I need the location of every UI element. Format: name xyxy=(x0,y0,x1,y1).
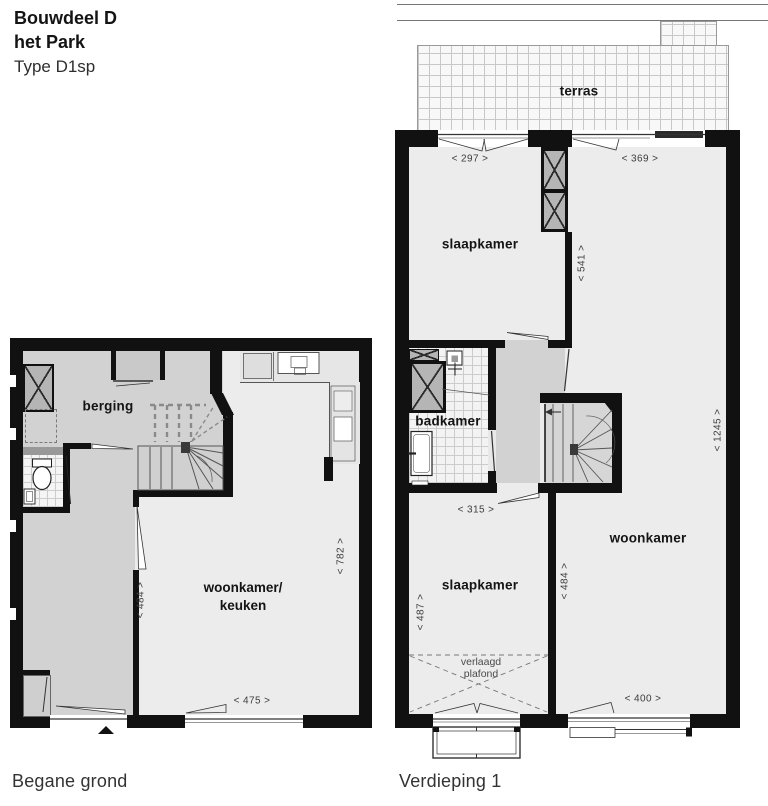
gf-wall-right xyxy=(359,338,372,728)
gf-label-woonkamer-keuken: woonkamer/ keuken xyxy=(204,579,283,615)
ff-hall-door-top xyxy=(505,340,548,348)
gf-hall-divider-upper xyxy=(133,490,139,507)
ff-terras-notch xyxy=(660,21,717,47)
ff-french-balcony-icon xyxy=(433,727,520,758)
gf-toilet-wall-bottom xyxy=(23,507,70,513)
ff-dim-315: < 315 > xyxy=(458,505,495,516)
gf-toilet-floor xyxy=(23,455,63,507)
gf-berging-door-wall xyxy=(63,443,91,449)
ff-window-back-2 xyxy=(568,714,690,728)
gf-washer-position xyxy=(25,409,57,443)
ff-dim-484: < 484 > xyxy=(560,563,571,600)
plan-title-line1: Bouwdeel D xyxy=(14,8,117,29)
ff-hall-upper xyxy=(496,348,565,395)
ff-divider-upper xyxy=(565,232,572,344)
gf-dim-484: < 484 > xyxy=(136,582,147,619)
ff-wall-right xyxy=(726,130,740,728)
ff-bath-shaft-small-icon xyxy=(409,349,439,361)
gf-caption: Begane grond xyxy=(12,771,128,792)
gf-kitchen-counter-right xyxy=(329,382,360,464)
gf-label-keuken-line2: keuken xyxy=(204,597,283,615)
ff-bath-shaft-icon xyxy=(409,361,446,413)
gf-kitchen-counter-top xyxy=(240,351,359,383)
gf-label-woonkamer-line1: woonkamer/ xyxy=(204,579,283,597)
gf-entrance-opening xyxy=(50,715,127,728)
ff-label-slaapkamer-front: slaapkamer xyxy=(442,237,518,252)
ff-divider-lower xyxy=(548,493,556,714)
gf-stair-treads-fill xyxy=(138,446,223,490)
ff-balcony-rail-icon xyxy=(570,728,692,738)
ff-wall-left xyxy=(395,130,409,728)
gf-wall-top xyxy=(10,338,372,351)
ff-woonkamer-door-stub xyxy=(552,340,572,348)
gf-toilet-wall-right xyxy=(63,449,70,511)
ff-label-woonkamer: woonkamer xyxy=(610,531,687,546)
ff-shaft-icon xyxy=(544,193,565,229)
gf-wall-notch xyxy=(10,608,16,620)
gf-label-berging: berging xyxy=(83,399,134,414)
ff-boundary-line-1 xyxy=(397,4,768,5)
plan-subtitle: Type D1sp xyxy=(14,57,95,77)
gf-wall-notch xyxy=(10,520,16,532)
ff-hall-lower xyxy=(496,395,540,483)
gf-kitchen-wall xyxy=(210,351,222,394)
ff-window-back-1 xyxy=(433,714,520,728)
gf-dim-782: < 782 > xyxy=(336,538,347,575)
gf-wall-notch xyxy=(10,375,16,387)
ff-window-front-1 xyxy=(438,130,528,147)
ff-hall-door-bottom xyxy=(497,483,538,493)
gf-shaft-icon xyxy=(23,364,54,412)
gf-meterbox xyxy=(23,675,51,717)
gf-stair-wall-right xyxy=(223,412,233,496)
gf-window-opening xyxy=(185,715,303,728)
ff-shaft-icon xyxy=(544,151,565,189)
ff-dim-297: < 297 > xyxy=(452,154,489,165)
ff-label-slaapkamer-back: slaapkamer xyxy=(442,578,518,593)
plan-title-line2: het Park xyxy=(14,32,85,53)
ff-dim-487: < 487 > xyxy=(416,594,427,631)
ff-label-verlaagd-plafond: verlaagd plafond xyxy=(461,656,501,680)
ff-stair-wall-right xyxy=(612,403,622,493)
floorplan-sheet: Bouwdeel D het Park Type D1sp berging wo… xyxy=(0,0,768,806)
gf-berging-entry-niche xyxy=(111,351,165,380)
ff-dim-400: < 400 > xyxy=(625,694,662,705)
ff-caption: Verdieping 1 xyxy=(399,771,501,792)
ff-dim-1245: < 1245 > xyxy=(713,409,724,452)
ff-window-panel xyxy=(655,131,703,138)
gf-wall-notch xyxy=(10,428,16,440)
gf-stair-wall-bottom xyxy=(135,490,233,497)
ff-dim-369: < 369 > xyxy=(622,154,659,165)
ff-stair-treads-fill xyxy=(545,403,612,483)
ff-stair-wall-top xyxy=(540,393,622,403)
gf-toilet-partition xyxy=(23,447,65,455)
ff-dim-541: < 541 > xyxy=(577,245,588,282)
ff-badkamer-door-opening xyxy=(488,430,496,471)
ff-label-badkamer: badkamer xyxy=(415,414,480,429)
gf-dim-475: < 475 > xyxy=(234,696,271,707)
ff-label-terras: terras xyxy=(560,84,599,99)
